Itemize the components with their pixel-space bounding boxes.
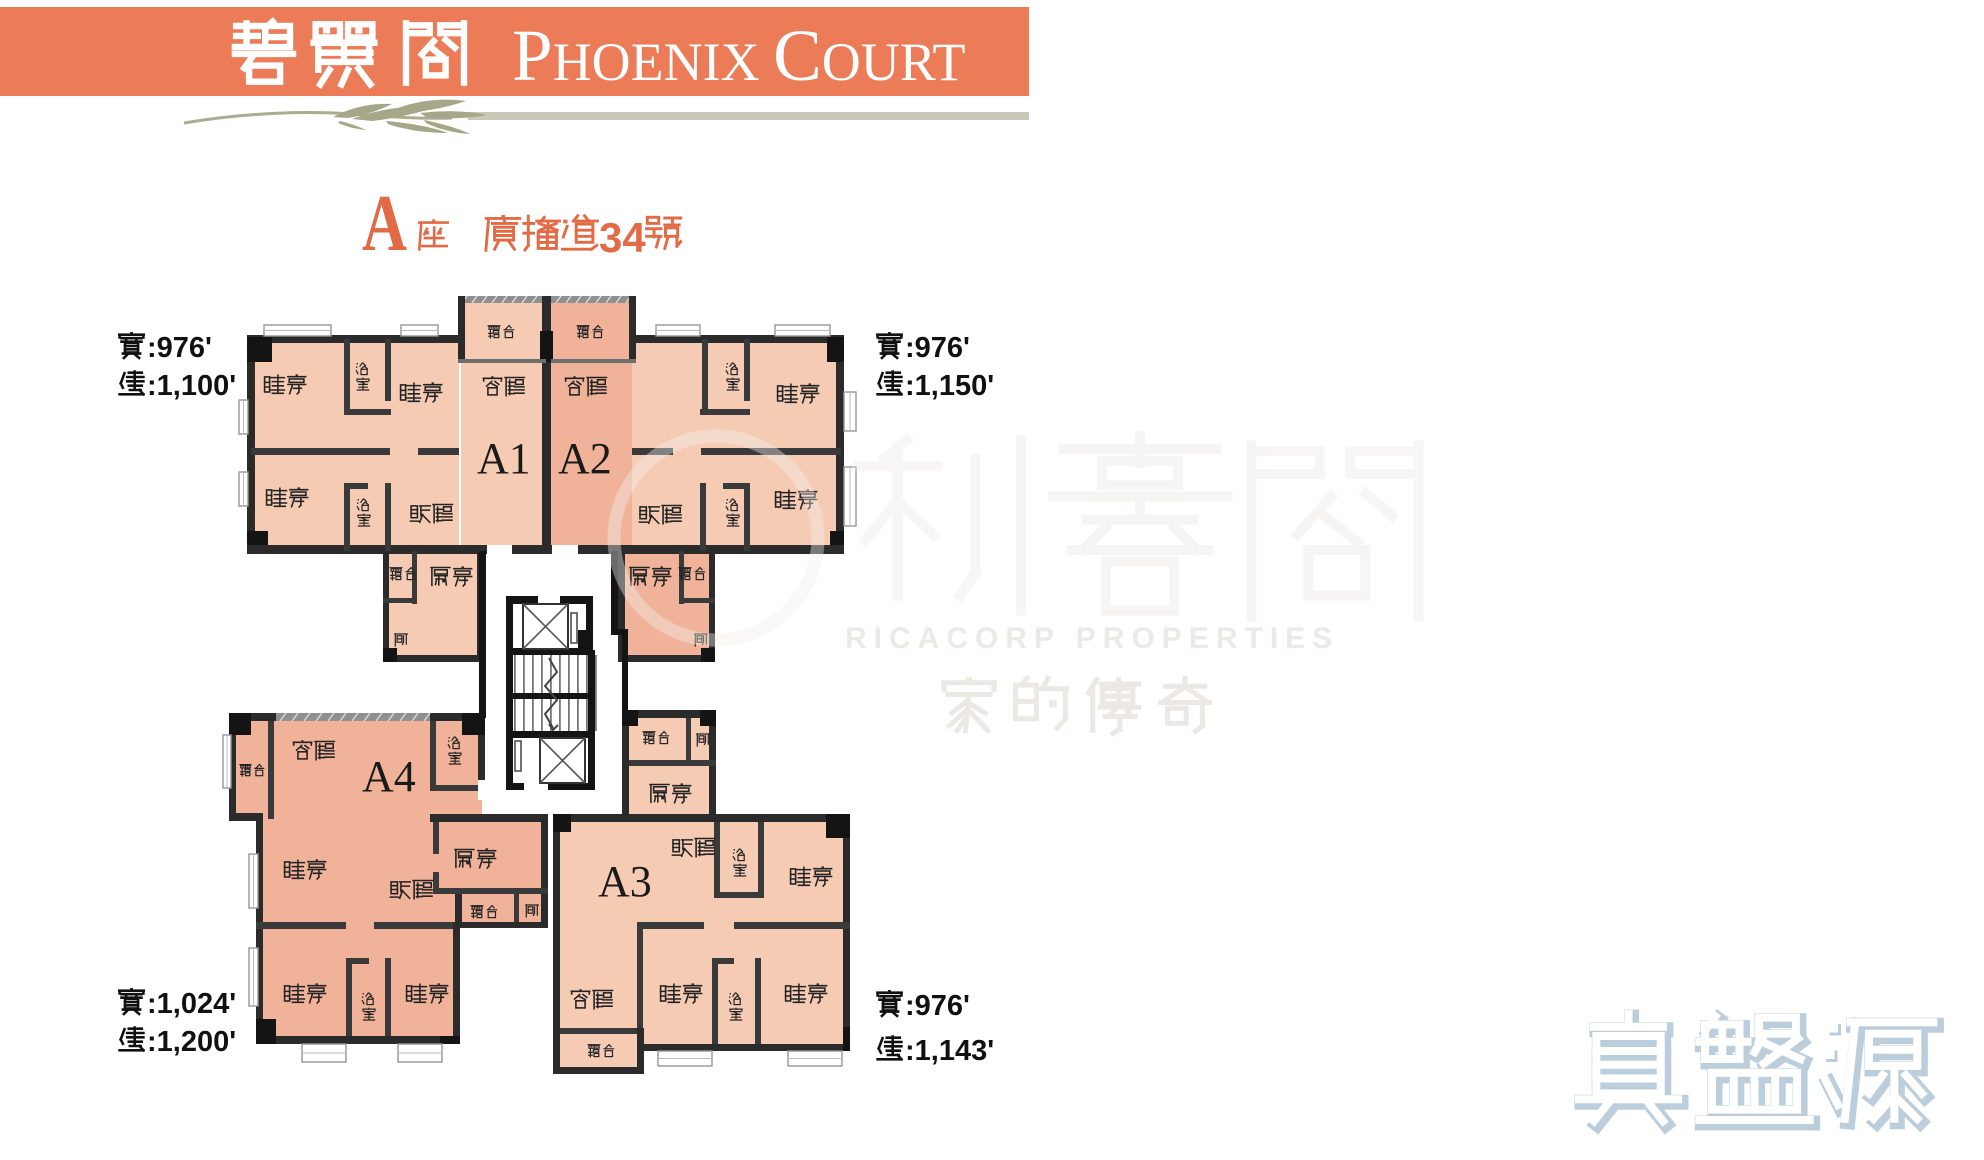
svg-text:A2: A2	[558, 434, 612, 483]
svg-text:A: A	[362, 179, 407, 268]
svg-text:A4: A4	[362, 752, 416, 801]
svg-text:34: 34	[599, 214, 646, 261]
svg-text::976': :976'	[905, 332, 970, 364]
svg-text::1,150': :1,150'	[905, 370, 994, 402]
svg-text::976': :976'	[147, 332, 212, 364]
svg-text::1,024': :1,024'	[147, 988, 236, 1020]
svg-text:A3: A3	[598, 857, 652, 906]
svg-text:RICACORP PROPERTIES: RICACORP PROPERTIES	[845, 622, 1339, 655]
svg-text::1,200': :1,200'	[147, 1026, 236, 1058]
svg-text:A1: A1	[477, 434, 531, 483]
svg-text::976': :976'	[905, 990, 970, 1022]
svg-text::1,143': :1,143'	[905, 1035, 994, 1067]
svg-text::1,100': :1,100'	[147, 370, 236, 402]
